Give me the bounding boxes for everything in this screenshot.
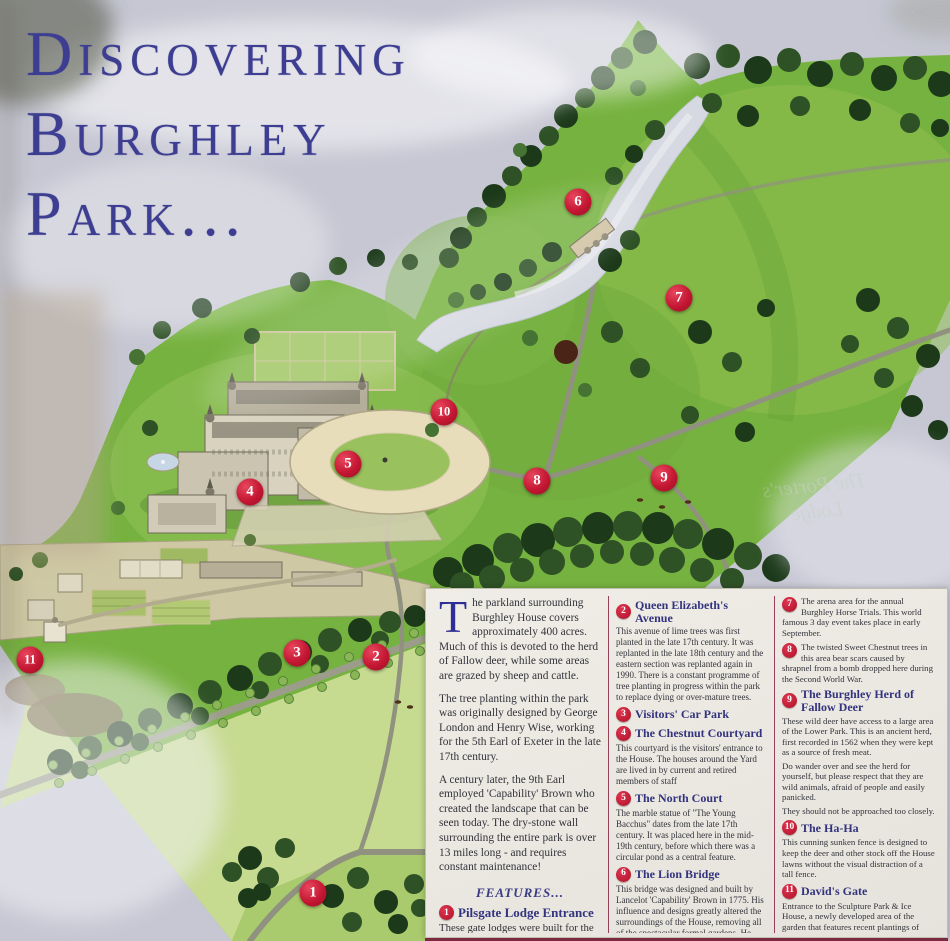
feature-5-text: The marble statue of "The Young Bacchus"… xyxy=(616,808,767,863)
map-marker-5: 5 xyxy=(335,451,362,478)
tree xyxy=(554,104,578,128)
tree xyxy=(642,512,674,544)
feature-item-11: 11David's GateEntrance to the Sculpture … xyxy=(782,884,936,933)
tree xyxy=(690,558,714,582)
tree xyxy=(539,549,565,575)
avenue-lime-tree xyxy=(213,701,222,710)
title-line-3: Park... xyxy=(26,174,411,254)
map-marker-8: 8 xyxy=(524,468,551,495)
tree xyxy=(871,65,897,91)
tree xyxy=(539,126,559,146)
tree xyxy=(244,534,256,546)
feature-11-text: Entrance to the Sculpture Park & Ice Hou… xyxy=(782,901,936,933)
tree xyxy=(681,406,699,424)
intro-paragraph-2: The tree planting within the park was or… xyxy=(439,692,601,765)
avenue-lime-tree xyxy=(351,671,360,680)
tree xyxy=(849,99,871,121)
tree xyxy=(142,420,158,436)
tree xyxy=(928,420,948,440)
park-information-sign: The Porter's Lodge Discovering Burghley … xyxy=(0,0,950,941)
tree xyxy=(734,542,762,570)
map-marker-6: 6 xyxy=(565,189,592,216)
tree xyxy=(522,330,538,346)
avenue-lime-tree xyxy=(410,629,419,638)
tree xyxy=(258,652,282,676)
tree xyxy=(659,547,685,573)
tree xyxy=(222,862,242,882)
feature-10-badge: 10 xyxy=(782,820,797,835)
map-marker-2: 2 xyxy=(363,644,390,671)
feature-4-text: This courtyard is the visitors' entrance… xyxy=(616,743,767,787)
tree xyxy=(625,145,643,163)
tree xyxy=(348,618,372,642)
tree xyxy=(554,340,578,364)
feature-9-text: They should not be approached too closel… xyxy=(782,806,936,817)
avenue-lime-tree xyxy=(312,665,321,674)
feature-3-title: Visitors' Car Park xyxy=(635,708,729,721)
features-heading: FEATURES... xyxy=(439,885,601,902)
feature-2-title: Queen Elizabeth's Avenue xyxy=(635,599,767,624)
deer-figure xyxy=(407,705,413,709)
features-column-3: 7The arena area for the annual Burghley … xyxy=(774,596,943,933)
tree xyxy=(374,890,398,914)
features-column-2: 2Queen Elizabeth's AvenueThis avenue of … xyxy=(608,596,774,933)
intro-paragraph-3: A century later, the 9th Earl employed '… xyxy=(439,773,601,875)
feature-8-text: 8The twisted Sweet Chestnut trees in thi… xyxy=(782,642,936,684)
intro-column: The parkland surrounding Burghley House … xyxy=(432,596,608,933)
tree xyxy=(329,257,347,275)
feature-2-text: This avenue of lime trees was first plan… xyxy=(616,626,767,703)
map-marker-4: 4 xyxy=(237,479,264,506)
feature-1-text: These gate lodges were built for the 3rd… xyxy=(439,922,601,933)
tree xyxy=(570,544,594,568)
tree xyxy=(840,52,864,76)
sign-title: Discovering Burghley Park... xyxy=(26,14,411,254)
avenue-lime-tree xyxy=(219,719,228,728)
tree xyxy=(253,883,271,901)
feature-item-6: 6The Lion BridgeThis bridge was designed… xyxy=(616,867,767,933)
tree xyxy=(605,167,623,185)
feature-6-badge: 6 xyxy=(616,867,631,882)
tree xyxy=(735,422,755,442)
feature-11-badge: 11 xyxy=(782,884,797,899)
avenue-lime-tree xyxy=(252,707,261,716)
feature-6-text: This bridge was designed and built by La… xyxy=(616,884,767,933)
feature-item-5: 5The North CourtThe marble statue of "Th… xyxy=(616,791,767,863)
feature-11-title: David's Gate xyxy=(801,885,867,898)
avenue-lime-tree xyxy=(279,677,288,686)
feature-1-title: Pilsgate Lodge Entrance xyxy=(458,906,594,920)
feature-item-10: 10The Ha-HaThis cunning sunken fence is … xyxy=(782,820,936,879)
feature-9-badge: 9 xyxy=(782,693,797,708)
feature-item-7: 7The arena area for the annual Burghley … xyxy=(782,596,936,638)
title-line-1: Discovering xyxy=(26,14,411,94)
tree xyxy=(790,96,810,116)
feature-9-text: These wild deer have access to a large a… xyxy=(782,716,936,758)
map-marker-3: 3 xyxy=(284,640,311,667)
tree xyxy=(613,511,643,541)
tree xyxy=(342,912,362,932)
feature-3-badge: 3 xyxy=(616,707,631,722)
tree xyxy=(404,605,426,627)
tree xyxy=(275,838,295,858)
feature-item-3: 3Visitors' Car Park xyxy=(616,707,767,722)
tree xyxy=(129,349,145,365)
bacchus-statue xyxy=(383,458,388,463)
tree xyxy=(856,288,880,312)
tree xyxy=(887,317,909,339)
tree xyxy=(931,119,949,137)
deer-figure xyxy=(659,505,665,509)
tree xyxy=(874,368,894,388)
avenue-lime-tree xyxy=(416,647,425,656)
tree xyxy=(513,143,527,157)
tree xyxy=(777,48,801,72)
tree xyxy=(482,184,506,208)
tree xyxy=(716,44,740,68)
avenue-lime-tree xyxy=(246,689,255,698)
map-marker-7: 7 xyxy=(666,285,693,312)
tree xyxy=(737,105,759,127)
feature-7-text: 7The arena area for the annual Burghley … xyxy=(782,596,936,638)
tree xyxy=(744,56,772,84)
tree xyxy=(493,533,523,563)
map-marker-11: 11 xyxy=(17,647,44,674)
feature-9-text: Do wander over and see the herd for your… xyxy=(782,761,936,803)
deer-figure xyxy=(685,500,691,504)
title-line-2: Burghley xyxy=(26,94,411,174)
tree xyxy=(673,519,703,549)
feature-item-8: 8The twisted Sweet Chestnut trees in thi… xyxy=(782,642,936,684)
tree xyxy=(630,542,654,566)
tree xyxy=(903,56,927,80)
tree xyxy=(630,358,650,378)
tree xyxy=(601,321,623,343)
tree xyxy=(379,611,401,633)
tree xyxy=(425,423,439,437)
tree xyxy=(578,383,592,397)
feature-5-title: The North Court xyxy=(635,792,722,805)
tree xyxy=(388,914,408,934)
tree xyxy=(600,540,624,564)
tree xyxy=(502,166,522,186)
tree xyxy=(318,628,342,652)
map-marker-1: 1 xyxy=(300,880,327,907)
feature-4-title: The Chestnut Courtyard xyxy=(635,727,762,740)
tree xyxy=(688,320,712,344)
features-panel: The parkland surrounding Burghley House … xyxy=(425,588,948,938)
intro-paragraph-1: The parkland surrounding Burghley House … xyxy=(439,596,601,684)
tree xyxy=(900,113,920,133)
feature-10-title: The Ha-Ha xyxy=(801,822,859,835)
tree xyxy=(841,335,859,353)
feature-10-text: This cunning sunken fence is designed to… xyxy=(782,837,936,879)
tree xyxy=(645,120,665,140)
feature-4-badge: 4 xyxy=(616,726,631,741)
tree xyxy=(347,867,369,889)
feature-5-badge: 5 xyxy=(616,791,631,806)
tree xyxy=(227,665,253,691)
tree xyxy=(807,61,833,87)
tree xyxy=(582,512,614,544)
feature-item-1: 1 Pilsgate Lodge Entrance These gate lod… xyxy=(439,905,601,933)
feature-item-9: 9The Burghley Herd of Fallow DeerThese w… xyxy=(782,688,936,816)
deer-figure xyxy=(637,498,643,502)
tree xyxy=(510,558,534,582)
tree xyxy=(238,846,262,870)
avenue-lime-tree xyxy=(318,683,327,692)
feature-7-badge: 7 xyxy=(782,597,797,612)
feature-2-badge: 2 xyxy=(616,604,631,619)
drop-cap: T xyxy=(439,598,467,635)
avenue-lime-tree xyxy=(345,653,354,662)
tree xyxy=(702,528,734,560)
tree xyxy=(111,501,125,515)
feature-8-badge: 8 xyxy=(782,643,797,658)
tree xyxy=(901,395,923,417)
tree xyxy=(404,874,424,894)
feature-1-badge: 1 xyxy=(439,905,454,920)
tree xyxy=(722,352,742,372)
feature-9-title: The Burghley Herd of Fallow Deer xyxy=(801,688,936,713)
avenue-lime-tree xyxy=(285,695,294,704)
feature-item-2: 2Queen Elizabeth's AvenueThis avenue of … xyxy=(616,599,767,703)
feature-6-title: The Lion Bridge xyxy=(635,868,720,881)
map-marker-9: 9 xyxy=(651,465,678,492)
tree xyxy=(553,517,583,547)
feature-item-4: 4The Chestnut CourtyardThis courtyard is… xyxy=(616,726,767,787)
tree xyxy=(916,344,940,368)
north-court-oval xyxy=(290,410,490,514)
tree xyxy=(702,93,722,113)
map-marker-10: 10 xyxy=(431,399,458,426)
tree xyxy=(757,299,775,317)
deer-figure xyxy=(395,700,401,704)
